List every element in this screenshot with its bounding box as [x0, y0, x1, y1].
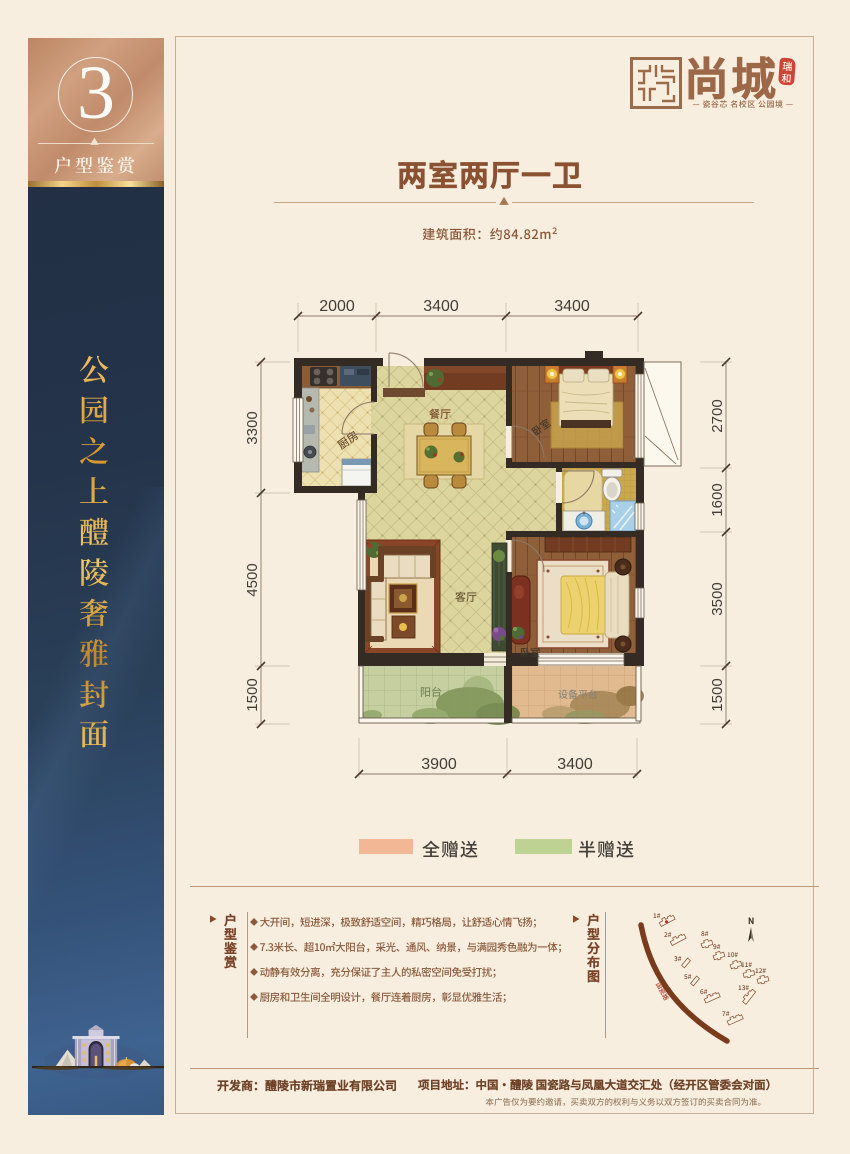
- svg-text:国瓷路: 国瓷路: [654, 980, 672, 1002]
- svg-text:3400: 3400: [557, 756, 593, 773]
- svg-text:3#: 3#: [674, 953, 682, 963]
- svg-text:5#: 5#: [684, 971, 692, 981]
- svg-text:3500: 3500: [709, 582, 726, 615]
- svg-text:3400: 3400: [423, 298, 459, 315]
- svg-text:13#: 13#: [738, 982, 749, 992]
- svg-text:1#: 1#: [653, 910, 661, 920]
- svg-text:3400: 3400: [554, 298, 590, 315]
- svg-text:设备平台: 设备平台: [558, 686, 598, 701]
- svg-text:1500: 1500: [244, 678, 261, 711]
- svg-text:3900: 3900: [421, 756, 457, 773]
- svg-text:1600: 1600: [709, 483, 726, 516]
- svg-text:7#: 7#: [722, 1008, 730, 1018]
- svg-text:1500: 1500: [709, 678, 726, 711]
- svg-text:6#: 6#: [700, 986, 708, 996]
- svg-text:8#: 8#: [701, 928, 709, 938]
- svg-text:11#: 11#: [741, 959, 752, 969]
- svg-text:3300: 3300: [244, 411, 261, 444]
- svg-text:卧室: 卧室: [520, 644, 540, 659]
- svg-text:10#: 10#: [727, 949, 738, 959]
- svg-text:9#: 9#: [713, 941, 721, 951]
- svg-text:4500: 4500: [244, 563, 261, 596]
- svg-text:12#: 12#: [755, 965, 766, 975]
- svg-text:客厅: 客厅: [455, 589, 477, 605]
- svg-text:2000: 2000: [319, 298, 355, 315]
- svg-text:2#: 2#: [664, 929, 672, 939]
- svg-text:餐厅: 餐厅: [429, 406, 451, 422]
- svg-text:N: N: [748, 915, 754, 927]
- svg-text:阳台: 阳台: [420, 684, 442, 700]
- svg-text:2700: 2700: [709, 399, 726, 432]
